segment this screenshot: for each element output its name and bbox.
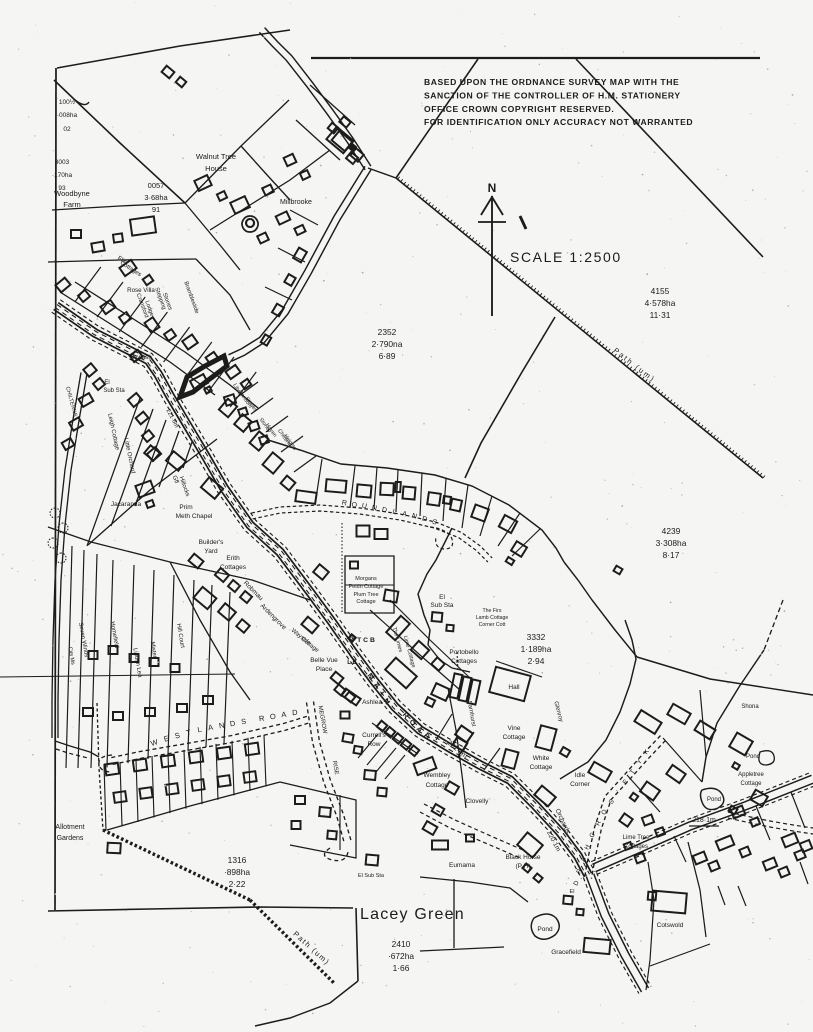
svg-text:Pond: Pond <box>746 754 760 760</box>
svg-text:A: A <box>281 710 287 719</box>
svg-text:Lacey Green: Lacey Green <box>360 906 465 923</box>
svg-text:1316: 1316 <box>228 855 247 865</box>
svg-text:Shona: Shona <box>741 704 759 710</box>
svg-text:Cottage: Cottage <box>530 764 553 771</box>
svg-text:Gracefield: Gracefield <box>551 949 581 956</box>
svg-text:3003: 3003 <box>55 159 70 166</box>
svg-text:OFFICE CROWN COPYRIGHT RESERVE: OFFICE CROWN COPYRIGHT RESERVED. <box>424 104 614 114</box>
svg-text:1·66: 1·66 <box>393 963 410 973</box>
svg-text:El Sub Sta: El Sub Sta <box>358 873 385 879</box>
svg-text:2·22: 2·22 <box>229 879 246 889</box>
svg-text:Vine: Vine <box>508 725 521 732</box>
svg-text:The Firs: The Firs <box>482 608 501 614</box>
svg-text:Pettin Cottage: Pettin Cottage <box>349 584 384 590</box>
svg-text:Pond: Pond <box>537 926 553 933</box>
svg-text:Morgans: Morgans <box>355 576 377 582</box>
svg-text:Yard: Yard <box>204 548 218 555</box>
svg-text:Prim: Prim <box>179 504 192 511</box>
svg-text:Appletree: Appletree <box>738 772 764 778</box>
svg-text:L B: L B <box>347 660 357 666</box>
svg-text:100½: 100½ <box>59 98 76 106</box>
svg-text:1·189ha: 1·189ha <box>521 644 552 654</box>
svg-text:SCALE 1:2500: SCALE 1:2500 <box>510 249 622 265</box>
svg-text:11·31: 11·31 <box>650 310 671 320</box>
svg-text:Clovelly: Clovelly <box>466 798 490 805</box>
svg-text:Eumama: Eumama <box>449 862 475 869</box>
svg-text:El: El <box>570 889 575 895</box>
svg-text:Portobello: Portobello <box>449 649 479 656</box>
svg-text:·170ha: ·170ha <box>52 172 73 179</box>
svg-text:Idle: Idle <box>575 772 586 779</box>
svg-text:Cottage: Cottage <box>503 734 526 741</box>
svg-text:Lime Tree: Lime Tree <box>623 835 650 841</box>
svg-text:Place: Place <box>316 666 333 673</box>
svg-text:Lamb Cottage: Lamb Cottage <box>476 615 509 621</box>
svg-text:Ashlea: Ashlea <box>362 699 382 706</box>
svg-text:2·790na: 2·790na <box>372 339 403 349</box>
svg-text:Meth Chapel: Meth Chapel <box>176 513 213 520</box>
svg-text:Cottage: Cottage <box>356 599 375 605</box>
svg-text:Corner Cott: Corner Cott <box>479 622 506 628</box>
svg-text:3·68ha: 3·68ha <box>144 193 168 202</box>
svg-text:Hall: Hall <box>508 684 520 691</box>
svg-text:4239: 4239 <box>662 526 681 536</box>
svg-text:Builder's: Builder's <box>199 539 224 546</box>
svg-text:T C B: T C B <box>357 637 375 644</box>
svg-text:8·17: 8·17 <box>663 550 680 560</box>
svg-text:N: N <box>488 181 497 195</box>
svg-text:4·578ha: 4·578ha <box>645 298 676 308</box>
svg-text:Belle Vue: Belle Vue <box>310 657 338 664</box>
svg-text:Plum Tree: Plum Tree <box>353 592 378 598</box>
svg-text:02: 02 <box>63 126 71 133</box>
svg-text:Sub Sta: Sub Sta <box>430 602 454 609</box>
svg-text:3·308ha: 3·308ha <box>656 538 687 548</box>
svg-text:SANCTION OF THE CONTROLLER OF: SANCTION OF THE CONTROLLER OF H.M. STATI… <box>424 90 681 100</box>
svg-text:6·89: 6·89 <box>379 351 396 361</box>
svg-text:3332: 3332 <box>527 632 546 642</box>
svg-text:·672ha: ·672ha <box>388 951 414 961</box>
svg-text:Sub Sta: Sub Sta <box>103 388 125 394</box>
svg-text:Wembley: Wembley <box>424 772 452 779</box>
svg-text:Woodbyne: Woodbyne <box>54 189 90 198</box>
svg-text:Jacaranda: Jacaranda <box>111 501 142 508</box>
svg-text:Erith: Erith <box>226 555 240 562</box>
svg-text:Corner: Corner <box>570 781 591 788</box>
svg-text:·898ha: ·898ha <box>224 867 250 877</box>
svg-text:Cotswold: Cotswold <box>657 922 684 929</box>
svg-text:Allotment: Allotment <box>55 824 84 831</box>
svg-text:El: El <box>439 594 445 601</box>
svg-text:218·1m: 218·1m <box>692 817 716 824</box>
svg-text:D: D <box>292 708 298 717</box>
svg-text:O: O <box>269 712 276 721</box>
svg-text:Millbrooke: Millbrooke <box>280 199 312 206</box>
svg-text:2352: 2352 <box>378 327 397 337</box>
svg-text:91: 91 <box>152 205 160 214</box>
svg-text:BASED UPON THE ORDNANCE SURVEY: BASED UPON THE ORDNANCE SURVEY MAP WITH … <box>424 77 679 87</box>
svg-text:2·94: 2·94 <box>528 656 545 666</box>
svg-text:FOR IDENTIFICATION ONLY ACCURA: FOR IDENTIFICATION ONLY ACCURACY NOT WAR… <box>424 117 693 127</box>
svg-text:Cottage: Cottage <box>740 781 762 787</box>
svg-text:·008ha: ·008ha <box>57 112 78 119</box>
svg-text:Gardens: Gardens <box>57 835 84 842</box>
svg-text:Pond: Pond <box>707 797 721 803</box>
svg-text:White: White <box>533 755 550 762</box>
svg-text:0057: 0057 <box>148 181 165 190</box>
svg-text:2410: 2410 <box>392 939 411 949</box>
svg-text:4155: 4155 <box>651 286 670 296</box>
